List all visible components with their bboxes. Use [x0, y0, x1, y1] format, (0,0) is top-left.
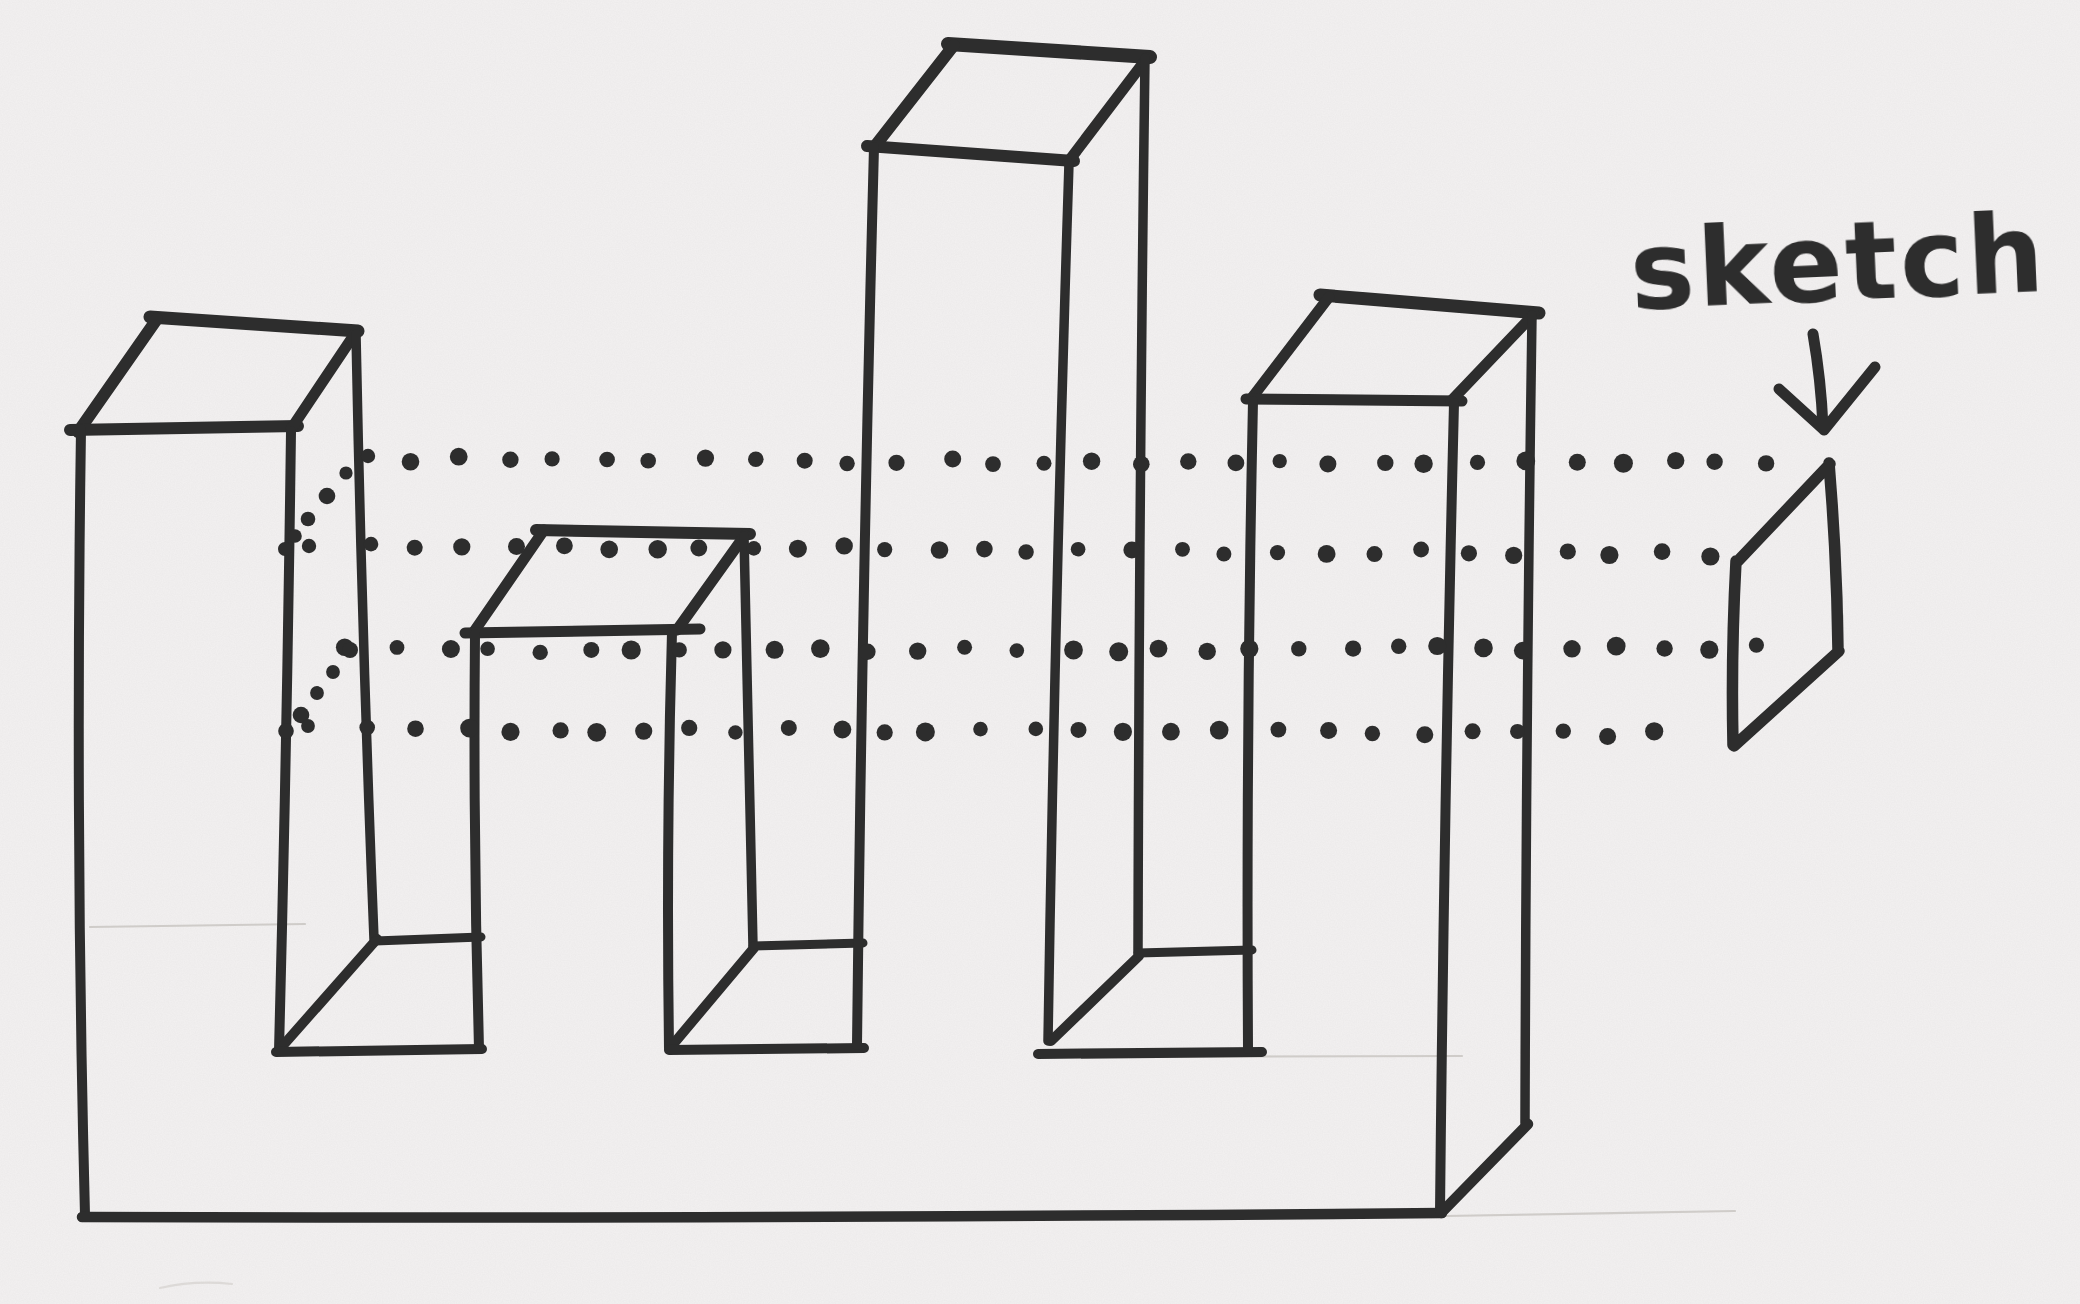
scanned-paper: sketch	[0, 0, 2080, 1304]
marker-drawing: sketch	[0, 0, 2080, 1304]
paper-grain	[0, 0, 2080, 1304]
sketch-label: sketch	[1627, 191, 2049, 334]
